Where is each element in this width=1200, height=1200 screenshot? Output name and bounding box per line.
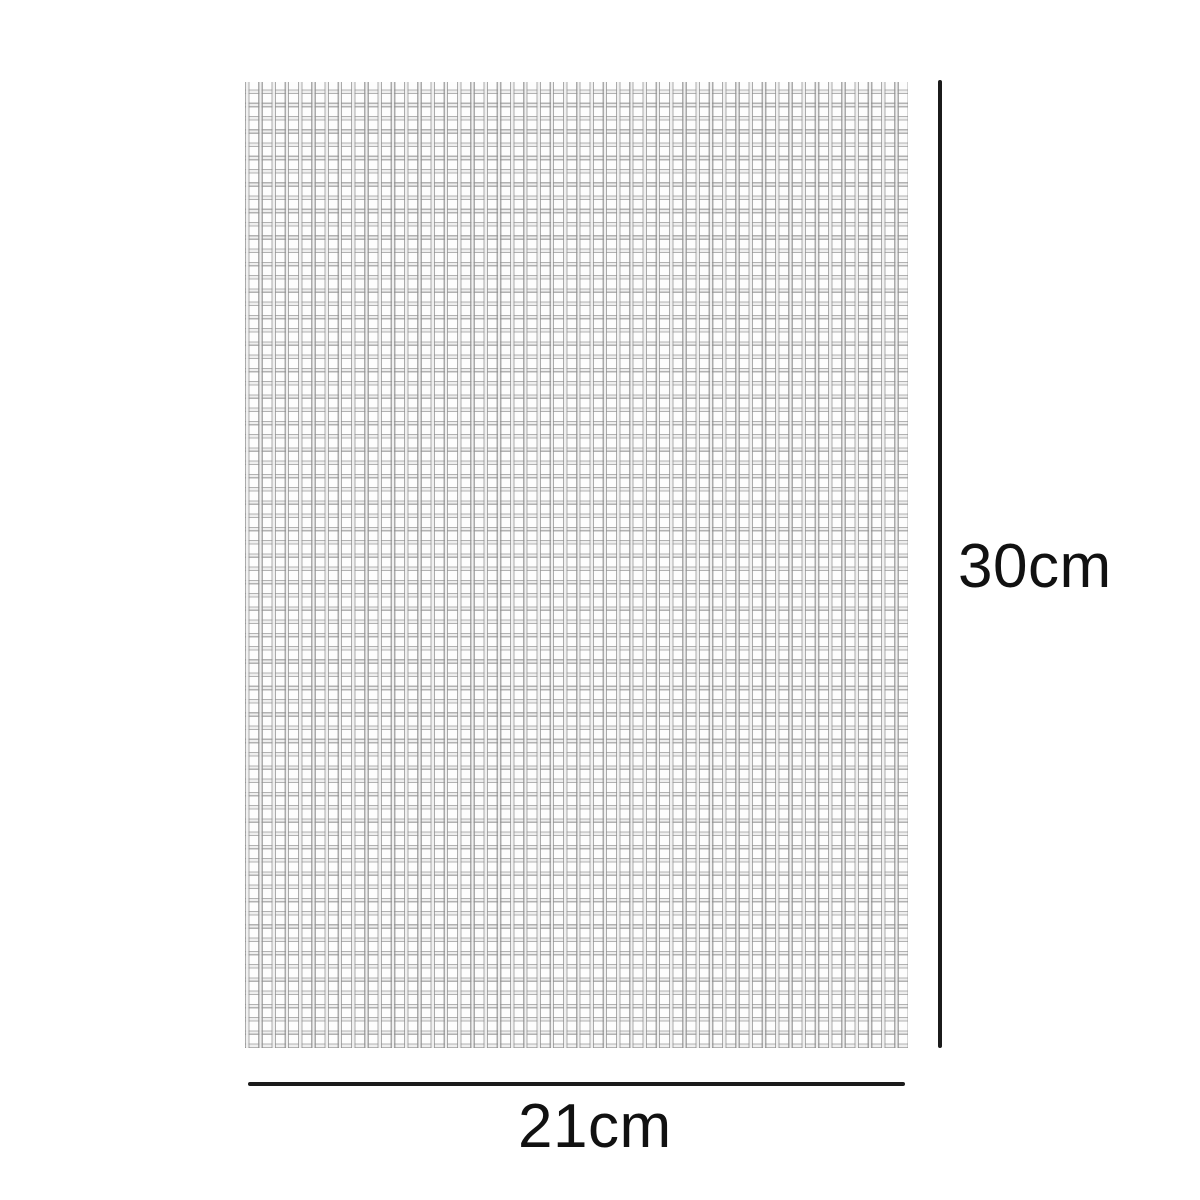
width-dimension-line: [248, 1082, 905, 1086]
product-dimension-diagram: 30cm 21cm: [0, 0, 1200, 1200]
height-dimension-label: 30cm: [958, 536, 1112, 598]
height-dimension-line: [938, 80, 942, 1048]
mesh-fabric-swatch: [245, 82, 908, 1048]
width-dimension-label: 21cm: [518, 1096, 672, 1158]
